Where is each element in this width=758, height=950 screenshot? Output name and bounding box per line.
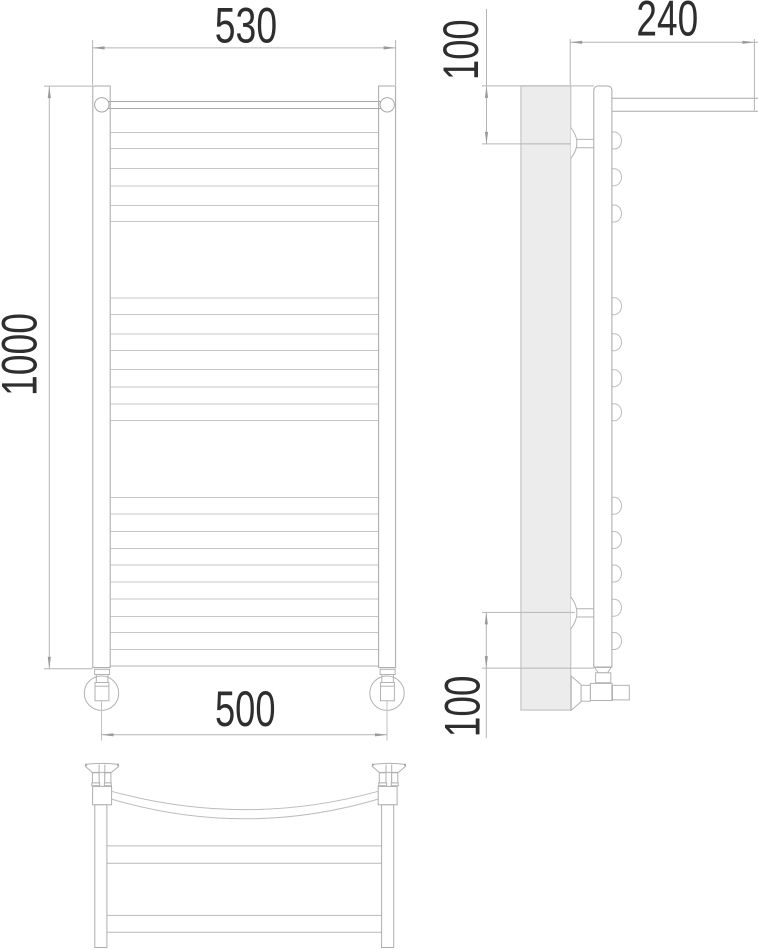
svg-text:100: 100 xyxy=(433,19,489,80)
svg-text:500: 500 xyxy=(215,681,276,737)
svg-text:240: 240 xyxy=(636,0,698,47)
svg-text:100: 100 xyxy=(435,676,491,738)
svg-text:530: 530 xyxy=(215,0,277,53)
svg-text:1000: 1000 xyxy=(0,313,47,396)
